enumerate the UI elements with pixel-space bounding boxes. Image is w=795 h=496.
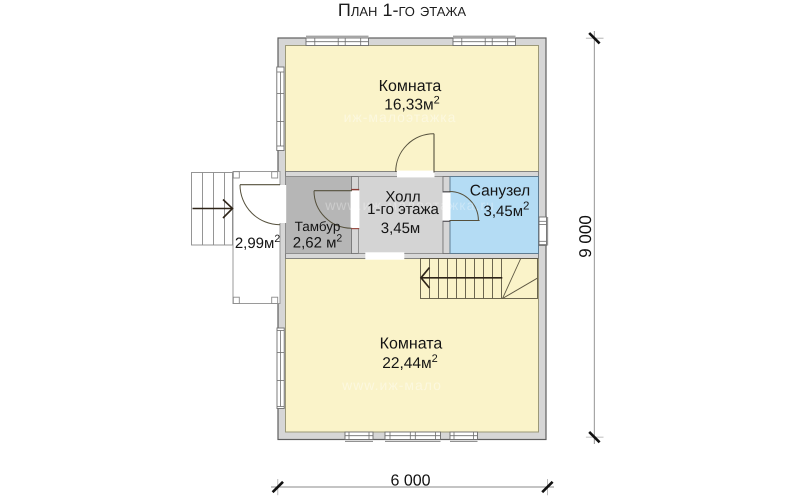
svg-text:16,33м2: 16,33м2: [384, 95, 440, 114]
svg-text:9 000: 9 000: [576, 215, 595, 258]
svg-text:2,99м2: 2,99м2: [235, 233, 281, 252]
svg-text:Санузел: Санузел: [470, 183, 530, 200]
svg-text:Комната: Комната: [380, 336, 443, 353]
svg-text:2,62 м2: 2,62 м2: [293, 233, 343, 252]
svg-text:План 1-го этажа: План 1-го этажа: [338, 0, 466, 20]
svg-text:1-го этажа: 1-го этажа: [367, 201, 439, 218]
svg-text:3,45м: 3,45м: [381, 220, 421, 237]
svg-text:www.иж-мало: www.иж-мало: [341, 377, 442, 393]
svg-text:Тамбур: Тамбур: [295, 219, 341, 234]
svg-text:6 000: 6 000: [390, 473, 430, 490]
svg-text:Комната: Комната: [379, 78, 442, 95]
svg-text:3,45м2: 3,45м2: [484, 201, 530, 221]
svg-text:22,44м2: 22,44м2: [382, 353, 438, 372]
